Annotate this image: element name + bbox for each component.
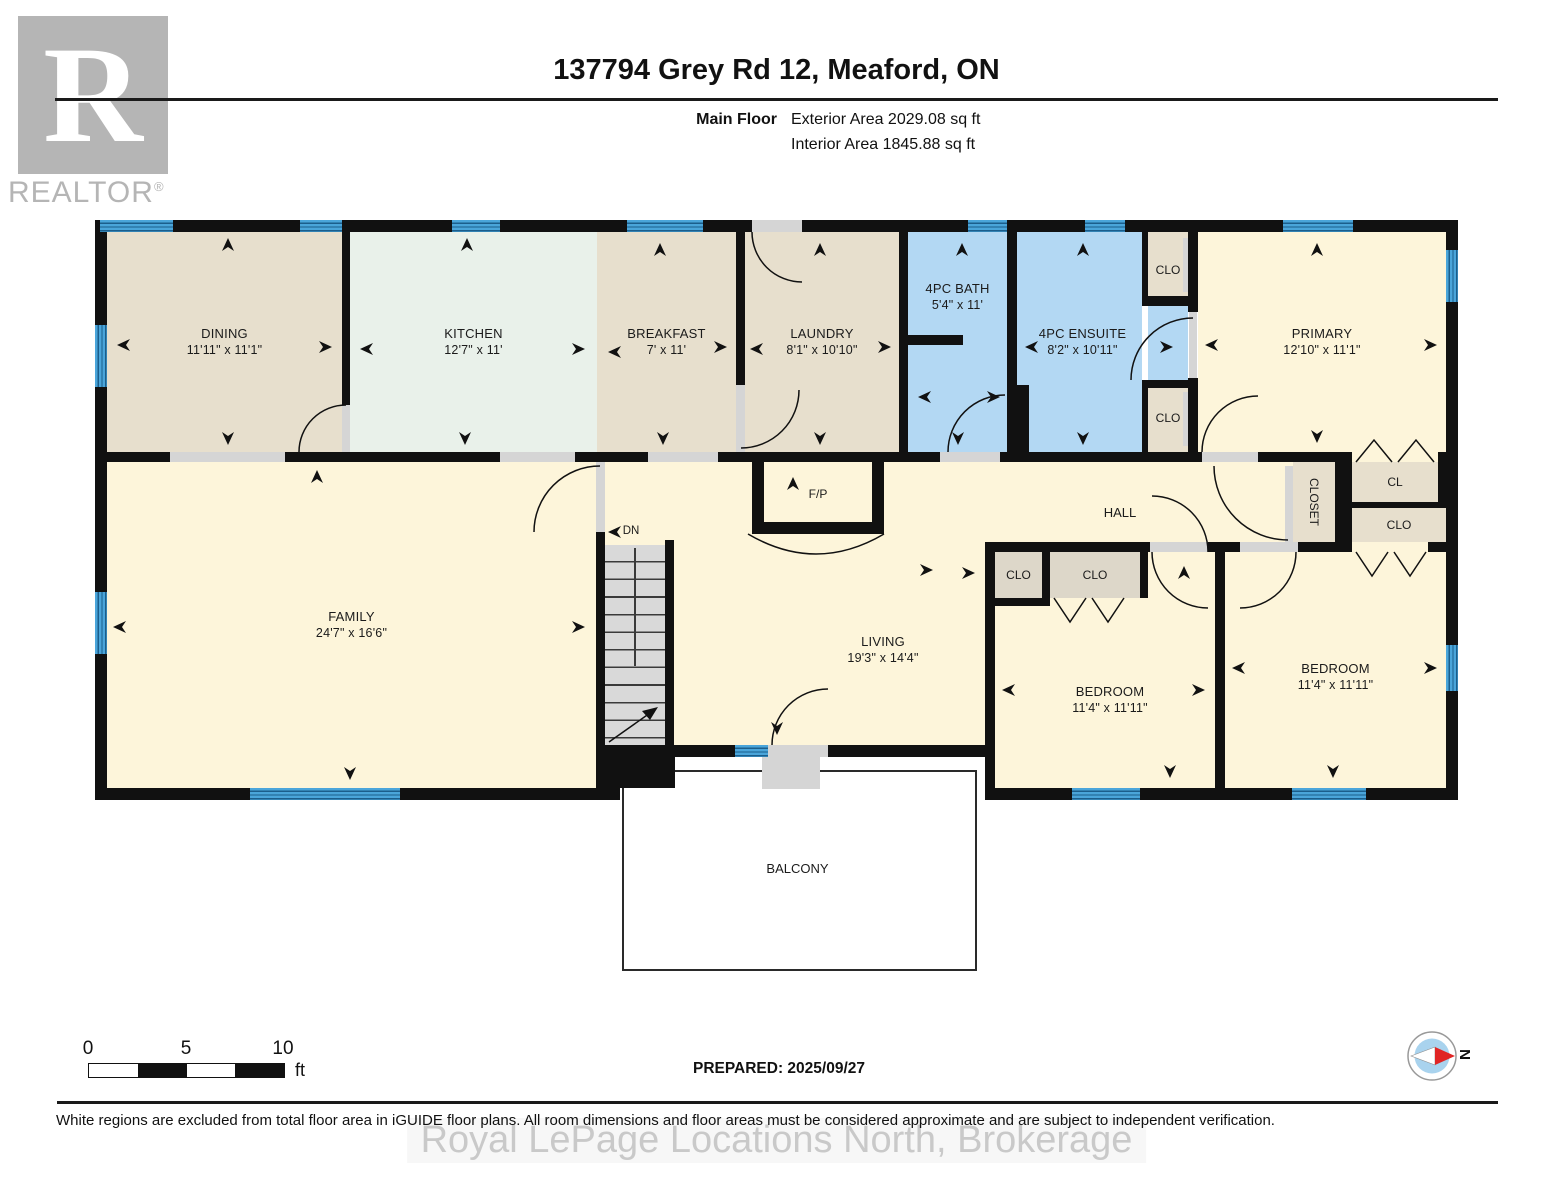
room-label-ensuite: 4PC ENSUITE8'2" x 10'11" [1017,232,1148,452]
door-bath-hall [940,452,1000,462]
scale-cell [235,1064,284,1077]
room-label-bedroom2: BEDROOM11'4" x 11'11" [1225,557,1446,797]
scale-cell [138,1064,187,1077]
scale-cell [89,1064,138,1077]
wall-bedroom-top-d [1428,542,1446,552]
exterior-area: Exterior Area 2029.08 sq ft [791,111,980,129]
room-label-primary: PRIMARY12'10" x 11'1" [1198,232,1446,452]
wall-seg [1258,452,1352,462]
interior-area: Interior Area 1845.88 sq ft [791,136,975,154]
room-label-laundry: LAUNDRY8'1" x 10'10" [745,232,899,452]
wall-clo-bottom-top [1142,380,1188,388]
floor-plan-page: R REALTOR® 137794 Grey Rd 12, Meaford, O… [0,0,1553,1200]
scale-cell [187,1064,236,1077]
window [95,592,107,654]
scale-bar [88,1063,285,1078]
realtor-logo-word: REALTOR® [8,176,165,210]
window [968,220,1007,232]
disclaimer-text: White regions are excluded from total fl… [56,1112,1376,1129]
realtor-logo-r-icon: R [43,26,143,164]
registered-mark: ® [154,179,165,194]
window [100,220,173,232]
cl-label: CL [1352,462,1438,502]
wall-seg [575,452,648,462]
door-primary-hall [1202,452,1258,462]
window [627,220,703,232]
opening-kitchen-family [500,452,575,462]
scale-tick-0: 0 [83,1038,94,1060]
wall-living-bottom-a [596,745,735,757]
room-label-bedroom1: BEDROOM11'4" x 11'11" [995,580,1225,820]
footer-rule [57,1101,1498,1104]
door-breakfast-laundry [736,385,745,452]
room-label-dining: DINING11'11" x 11'1" [107,232,342,452]
door-family-stairs [596,462,605,532]
balcony-label: BALCONY [622,770,973,967]
room-fill-ensuite-strip [1148,306,1188,380]
wall-seg [718,452,940,462]
wall-stairs-left [596,532,605,748]
scale-unit: ft [295,1060,305,1081]
window [1085,220,1125,232]
clo-label: CLO [1148,240,1188,300]
stair-rail [634,548,636,666]
wall-cl-right [1438,462,1446,502]
room-label-bath: 4PC BATH5'4" x 11' [908,232,1007,362]
room-label-living: LIVING19'3" x 14'4" [733,515,1033,785]
clo-label: CLO [1148,388,1188,448]
prepared-date: PREPARED: 2025/09/27 [629,1060,929,1078]
window [1446,250,1458,302]
fireplace-label: F/P [752,462,884,526]
stairs-dn-label: DN [614,520,648,542]
scale-tick-10: 10 [272,1038,293,1060]
opening-dining-family [170,452,285,462]
window [452,220,500,232]
room-label-kitchen: KITCHEN12'7" x 11' [350,232,597,452]
page-title: 137794 Grey Rd 12, Meaford, ON [0,54,1553,87]
compass-north-label: N [1456,1049,1473,1060]
window [1446,645,1458,691]
door-ensuite-primary [1189,312,1197,378]
realtor-logo: R [18,16,168,174]
bifold-gap-patch [1352,452,1438,462]
wall-seg [95,452,170,462]
door-laundry-top [752,220,802,232]
wall-clo-primary-b [1188,378,1198,452]
floor-label: Main Floor [597,111,777,129]
wall-dining-kitchen [342,232,350,405]
room-label-family: FAMILY24'7" x 16'6" [107,462,596,788]
closet-label: CLOSET [1274,481,1354,523]
clo-label: CLO [1352,508,1446,542]
wall-laundry-bath [899,232,908,452]
wall-clo-primary-a [1188,232,1198,312]
wall-stairs-right [665,540,674,748]
wall-outer-left [95,220,107,800]
wall-breakfast-laundry [736,232,745,385]
wall-seg [1438,452,1458,462]
room-label-breakfast: BREAKFAST7' x 11' [597,232,736,452]
window [250,788,400,800]
window [95,325,107,387]
wall-bath-ensuite [1007,232,1017,452]
clo-label: CLO [995,552,1042,598]
wall-outer-right [1446,220,1458,800]
opening-breakfast-living [648,452,718,462]
title-rule [55,98,1498,101]
wall-seg [1000,452,1202,462]
clo-label: CLO [1050,552,1140,598]
wall-seg [285,452,500,462]
compass-icon [1406,1030,1458,1082]
hall-label: HALL [960,472,1280,552]
window [1283,220,1353,232]
scale-tick-5: 5 [181,1038,192,1060]
window [300,220,342,232]
door-dining-kitchen [342,405,350,452]
